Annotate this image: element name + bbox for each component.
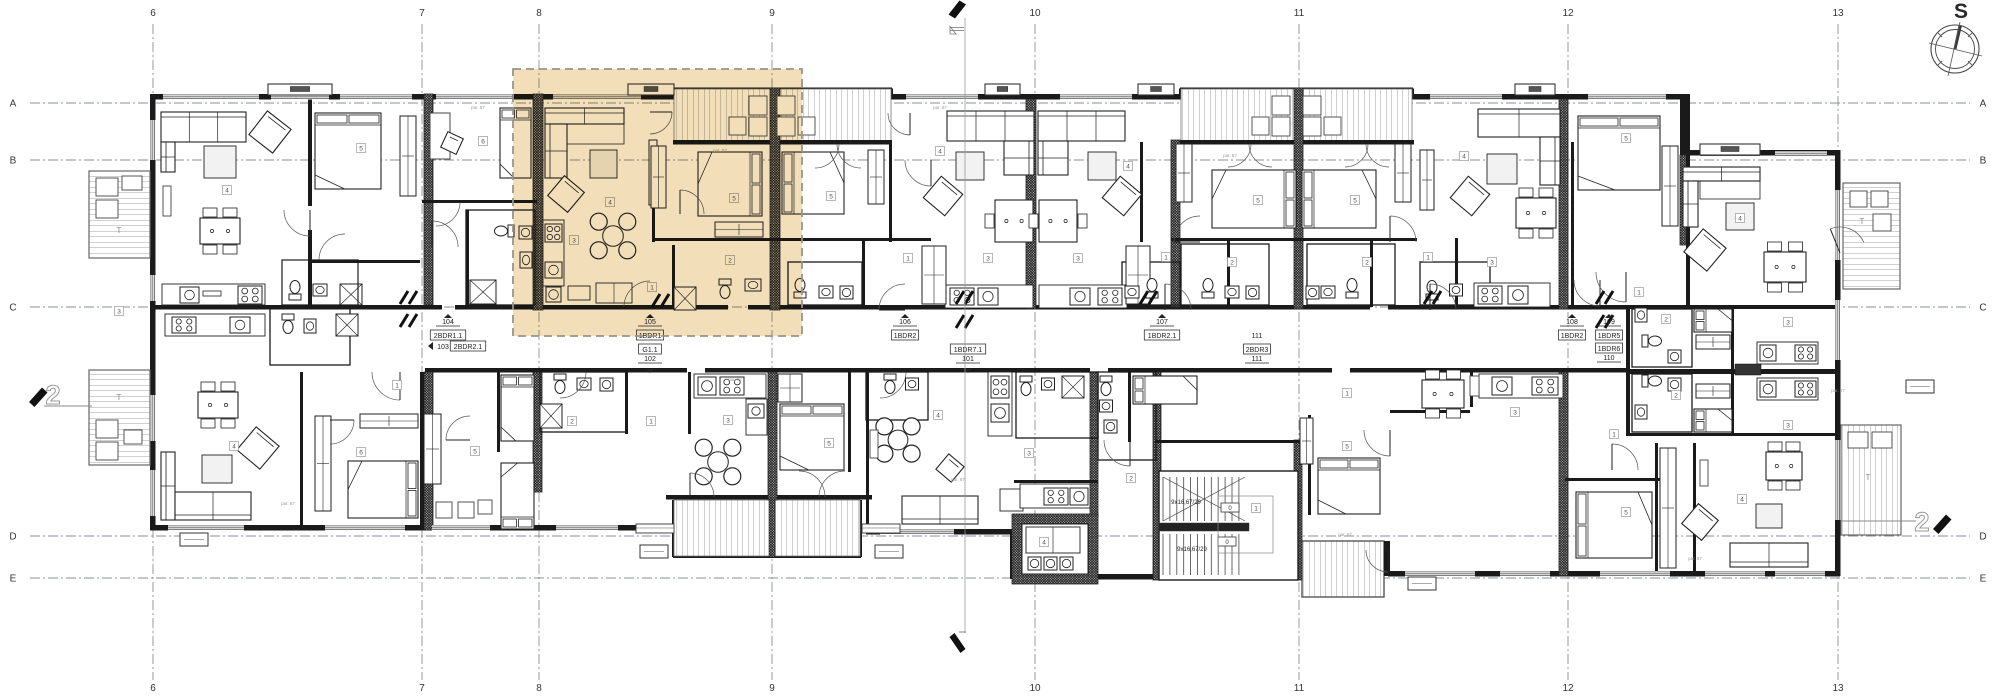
svg-text:par. 87: par. 87 (1831, 388, 1845, 393)
svg-text:3: 3 (1513, 410, 1517, 417)
svg-text:T: T (1860, 217, 1865, 226)
svg-text:1BDR7.1: 1BDR7.1 (954, 347, 983, 354)
svg-text:101: 101 (962, 356, 974, 363)
svg-text:8: 8 (536, 683, 542, 694)
svg-text:3: 3 (726, 418, 730, 425)
svg-text:1: 1 (1426, 255, 1430, 262)
svg-text:103: 103 (437, 344, 449, 351)
svg-text:2BDR2.1: 2BDR2.1 (454, 344, 483, 351)
svg-text:13: 13 (1832, 8, 1844, 19)
svg-text:11: 11 (1294, 683, 1305, 694)
svg-text:C: C (1979, 303, 1986, 314)
svg-text:3: 3 (1076, 256, 1080, 263)
svg-text:10: 10 (1029, 8, 1041, 19)
svg-text:109: 109 (1603, 319, 1615, 326)
svg-text:4: 4 (1126, 164, 1130, 171)
svg-text:2: 2 (1230, 260, 1234, 267)
svg-text:8: 8 (536, 8, 542, 19)
svg-text:par. 87: par. 87 (471, 105, 485, 110)
svg-text:A: A (10, 99, 17, 110)
svg-text:7: 7 (419, 8, 425, 19)
svg-text:6: 6 (150, 683, 156, 694)
svg-text:102: 102 (644, 356, 656, 363)
svg-text:3: 3 (1786, 320, 1790, 327)
svg-text:1: 1 (1612, 432, 1616, 439)
svg-text:2BDR3: 2BDR3 (1246, 347, 1269, 354)
svg-text:D: D (1979, 532, 1986, 543)
svg-text:5: 5 (359, 146, 363, 153)
svg-text:9x16,67/29: 9x16,67/29 (1171, 500, 1201, 506)
svg-text:1: 1 (1637, 290, 1641, 297)
svg-text:2: 2 (570, 419, 574, 426)
svg-text:1BDR2: 1BDR2 (894, 333, 917, 340)
svg-text:2BDR1.1: 2BDR1.1 (434, 333, 463, 340)
svg-text:par. 87: par. 87 (1688, 556, 1702, 561)
svg-text:6: 6 (359, 450, 363, 457)
svg-text:par. 87: par. 87 (281, 501, 295, 506)
svg-text:5: 5 (1353, 198, 1357, 205)
svg-text:4: 4 (232, 444, 236, 451)
svg-text:111: 111 (1252, 356, 1263, 363)
svg-text:D: D (9, 532, 16, 543)
svg-text:13: 13 (1832, 683, 1844, 694)
svg-text:2: 2 (1674, 393, 1678, 400)
svg-text:S: S (1954, 0, 1968, 23)
svg-text:3: 3 (1490, 260, 1494, 267)
svg-text:12: 12 (1562, 683, 1574, 694)
svg-text:A: A (1980, 99, 1987, 110)
svg-text:1BDR5: 1BDR5 (1598, 333, 1621, 340)
svg-text:C: C (9, 303, 16, 314)
svg-text:par. 87: par. 87 (728, 377, 742, 382)
svg-text:106: 106 (899, 319, 911, 326)
svg-text:1BDR2.1: 1BDR2.1 (1148, 333, 1177, 340)
svg-text:4: 4 (936, 413, 940, 420)
svg-text:12: 12 (1562, 8, 1574, 19)
svg-text:3: 3 (1027, 451, 1031, 458)
svg-text:6: 6 (481, 139, 485, 146)
svg-text:9: 9 (769, 683, 775, 694)
svg-text:T: T (1866, 473, 1871, 482)
svg-text:E: E (1980, 574, 1987, 585)
svg-text:108: 108 (1566, 319, 1578, 326)
svg-text:7: 7 (419, 683, 425, 694)
svg-text:T: T (117, 393, 122, 402)
svg-text:11: 11 (1294, 8, 1305, 19)
svg-text:104: 104 (442, 319, 454, 326)
svg-text:1: 1 (906, 256, 910, 263)
svg-text:5: 5 (827, 441, 831, 448)
svg-text:2: 2 (1664, 317, 1668, 324)
svg-text:3: 3 (1786, 423, 1790, 430)
svg-text:3: 3 (117, 309, 121, 316)
svg-text:2: 2 (1129, 476, 1133, 483)
svg-text:111: 111 (1252, 333, 1263, 340)
svg-text:4: 4 (938, 149, 942, 156)
svg-text:4: 4 (225, 188, 229, 195)
svg-text:2: 2 (1365, 260, 1369, 267)
svg-text:5: 5 (1624, 136, 1628, 143)
svg-text:4: 4 (1738, 216, 1742, 223)
svg-text:3: 3 (986, 256, 990, 263)
svg-text:4: 4 (1462, 154, 1466, 161)
svg-text:G1.1: G1.1 (642, 347, 657, 354)
svg-text:B: B (10, 156, 17, 167)
svg-text:107: 107 (1156, 319, 1168, 326)
svg-text:E: E (10, 574, 17, 585)
svg-text:1BDR6: 1BDR6 (1598, 346, 1621, 353)
svg-text:10: 10 (1029, 683, 1041, 694)
svg-text:5: 5 (1256, 198, 1260, 205)
svg-text:9: 9 (769, 8, 775, 19)
svg-text:110: 110 (1603, 355, 1614, 362)
svg-text:T: T (117, 226, 122, 235)
svg-text:1: 1 (395, 383, 399, 390)
svg-text:2: 2 (45, 380, 60, 410)
svg-text:par. 87: par. 87 (951, 477, 965, 482)
svg-text:9x16,67/29: 9x16,67/29 (1177, 547, 1207, 553)
svg-text:par. 87: par. 87 (1338, 532, 1352, 537)
svg-text:5: 5 (1624, 510, 1628, 517)
svg-text:5: 5 (829, 194, 833, 201)
svg-text:1: 1 (1254, 506, 1258, 513)
svg-text:1BDR2: 1BDR2 (1561, 333, 1584, 340)
svg-text:1: 1 (1345, 391, 1349, 398)
svg-text:4: 4 (1042, 540, 1046, 547)
svg-text:B: B (1980, 156, 1987, 167)
svg-text:par. 87: par. 87 (1223, 153, 1237, 158)
svg-text:2: 2 (1914, 507, 1929, 537)
svg-text:par. 87: par. 87 (933, 105, 947, 110)
svg-text:1: 1 (1164, 255, 1168, 262)
svg-text:6: 6 (150, 8, 156, 19)
svg-text:5: 5 (473, 449, 477, 456)
svg-text:1: 1 (649, 419, 653, 426)
svg-text:5: 5 (1345, 444, 1349, 451)
svg-text:4: 4 (1740, 497, 1744, 504)
